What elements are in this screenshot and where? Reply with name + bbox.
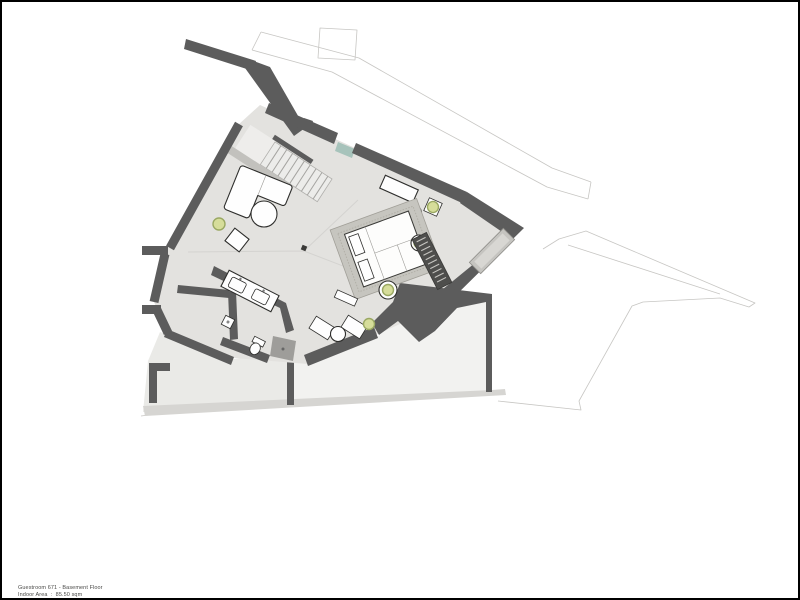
floor-plan-drawing (2, 2, 800, 600)
landscape-chevron-outline (498, 231, 755, 410)
side-table (331, 327, 346, 342)
entry-wall-band (184, 39, 256, 71)
chevron-inner-line (568, 245, 720, 294)
drain (282, 348, 285, 351)
plant (364, 319, 375, 330)
title-block: Guestroom 671 - Basement Floor Indoor Ar… (18, 585, 103, 598)
plant (213, 218, 225, 230)
bedside-plant (383, 285, 394, 296)
left-wall-stub-lower (142, 305, 161, 314)
context-rect-outline (318, 28, 357, 60)
caption-line-2: Indoor Area : 85.50 sqm (18, 592, 103, 599)
caption-line-1: Guestroom 671 - Basement Floor (18, 585, 103, 592)
left-wall-stub-upper (142, 246, 168, 255)
floor-plan-page: Guestroom 671 - Basement Floor Indoor Ar… (0, 0, 800, 600)
coffee-table (251, 201, 277, 227)
